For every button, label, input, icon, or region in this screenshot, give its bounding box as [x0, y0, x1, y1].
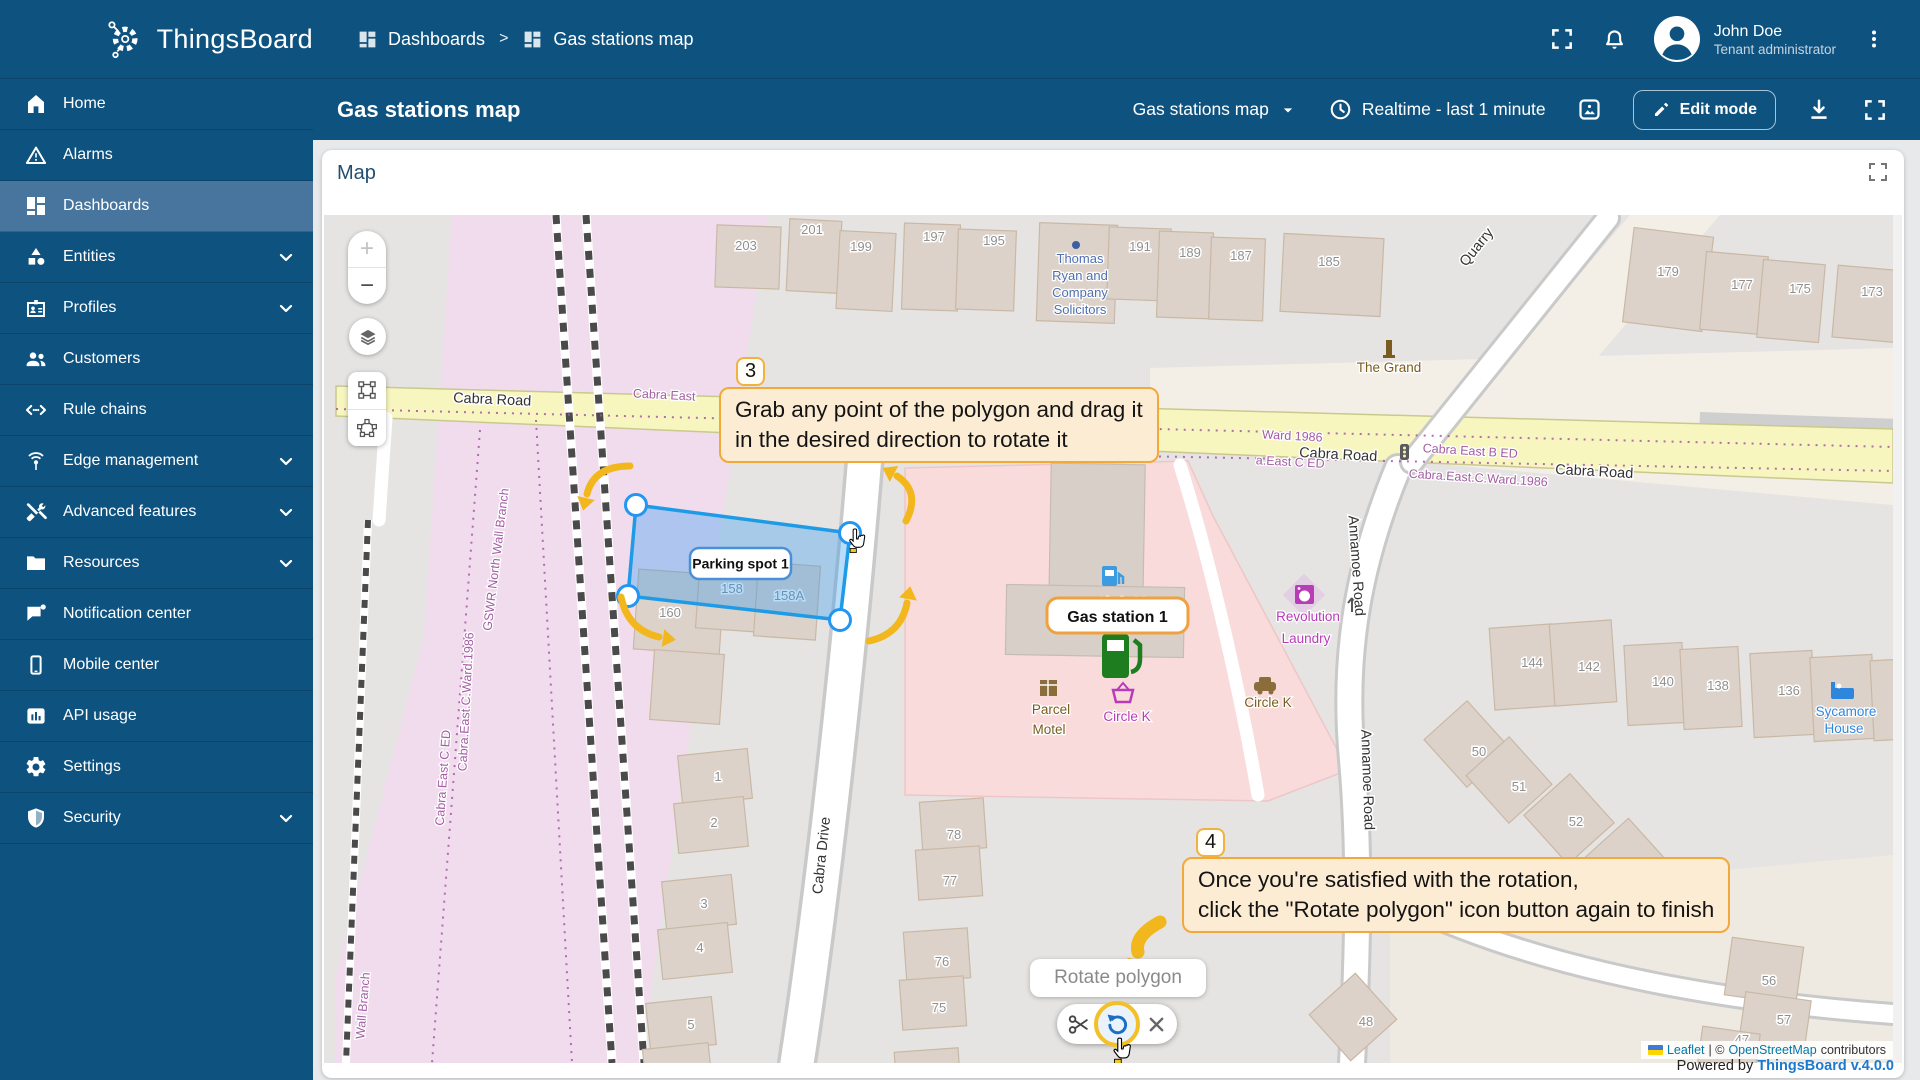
sidebar-item-home[interactable]: Home — [0, 79, 313, 130]
antenna-icon — [24, 449, 48, 473]
folder-icon — [24, 551, 48, 575]
user-name: John Doe — [1714, 22, 1836, 42]
svg-text:179: 179 — [1657, 264, 1679, 279]
user-menu[interactable]: John Doe Tenant administrator — [1654, 16, 1836, 62]
more-menu-icon[interactable] — [1862, 27, 1886, 51]
map-canvas[interactable]: 203 201 199 197 195 191 189 187 185 179 … — [324, 215, 1893, 1063]
dashboard-icon — [522, 29, 543, 50]
widget-title: Map — [337, 160, 376, 185]
sidebar-item-settings[interactable]: Settings — [0, 742, 313, 793]
fullscreen-dashboard-button[interactable] — [1862, 97, 1888, 123]
cursor-hand-icon — [1110, 1037, 1140, 1063]
polygon-vertex-handle[interactable] — [626, 495, 647, 516]
svg-text:177: 177 — [1731, 277, 1753, 292]
notifications-bell-icon[interactable] — [1601, 26, 1628, 53]
layers-icon — [357, 326, 379, 348]
svg-text:189: 189 — [1179, 245, 1201, 260]
home-icon — [24, 92, 48, 116]
svg-text:1: 1 — [714, 769, 721, 784]
chevron-down-icon — [275, 552, 297, 574]
svg-text:3: 3 — [700, 896, 707, 911]
svg-text:2: 2 — [710, 815, 717, 830]
svg-text:The Grand: The Grand — [1357, 360, 1422, 375]
chevron-down-icon — [275, 807, 297, 829]
gear-icon — [24, 755, 48, 779]
screenshot-button[interactable] — [1576, 96, 1603, 123]
svg-text:138: 138 — [1707, 678, 1729, 693]
thingsboard-gear-icon — [104, 15, 145, 63]
svg-text:144: 144 — [1521, 655, 1543, 670]
breadcrumb: Dashboards > Gas stations map — [357, 29, 693, 50]
powered-by: Powered by ThingsBoard v.4.0.0 — [1677, 1058, 1894, 1074]
svg-text:Thomas: Thomas — [1057, 251, 1104, 266]
chevron-down-icon — [275, 297, 297, 319]
zoom-out-button[interactable]: − — [348, 268, 386, 304]
svg-text:Motel: Motel — [1032, 722, 1065, 737]
svg-text:57: 57 — [1777, 1012, 1791, 1027]
gas-station-label: Gas station 1 — [1047, 598, 1188, 633]
sidebar-item-security[interactable]: Security — [0, 793, 313, 844]
polygon-vertex-handle[interactable] — [830, 610, 851, 631]
sidebar-nav: Home Alarms Dashboards Entities Profiles — [0, 79, 313, 1080]
user-role: Tenant administrator — [1714, 42, 1836, 57]
sidebar-item-rule-chains[interactable]: Rule chains — [0, 385, 313, 436]
svg-text:191: 191 — [1129, 239, 1151, 254]
sidebar-item-mobile-center[interactable]: Mobile center — [0, 640, 313, 691]
svg-text:160: 160 — [659, 605, 681, 620]
guide-step-3-badge: 3 — [736, 357, 765, 386]
sidebar-item-api-usage[interactable]: API usage — [0, 691, 313, 742]
widget-fullscreen-icon[interactable] — [1866, 160, 1890, 184]
thingsboard-logo[interactable]: ThingsBoard — [0, 15, 313, 63]
scrollbar-track[interactable] — [1893, 215, 1902, 1063]
thingsboard-version-link[interactable]: ThingsBoard v.4.0.0 — [1757, 1058, 1894, 1074]
shape-edit-controls — [348, 372, 386, 446]
clock-icon — [1328, 97, 1353, 122]
dashboard-state-select[interactable]: Gas stations map — [1133, 99, 1298, 120]
svg-text:Parking spot 1: Parking spot 1 — [692, 556, 789, 572]
svg-text:78: 78 — [947, 827, 961, 842]
svg-text:195: 195 — [983, 233, 1005, 248]
svg-text:Solicitors: Solicitors — [1054, 302, 1107, 317]
avatar — [1654, 16, 1700, 62]
chevron-down-icon — [275, 246, 297, 268]
page-title: Gas stations map — [337, 97, 520, 123]
svg-text:76: 76 — [935, 954, 949, 969]
map-attribution: Leaflet | © OpenStreetMap contributors — [1641, 1041, 1893, 1059]
timewindow-button[interactable]: Realtime - last 1 minute — [1328, 97, 1546, 122]
breadcrumb-separator: > — [499, 30, 508, 48]
svg-text:50: 50 — [1472, 744, 1486, 759]
map-widget-card: Map — [322, 150, 1904, 1078]
sidebar-item-edge-management[interactable]: Edge management — [0, 436, 313, 487]
shield-icon — [24, 806, 48, 830]
guide-step-3-tooltip: Grab any point of the polygon and drag i… — [719, 387, 1159, 463]
dashboard-toolbar: Gas stations map Gas stations map Realti… — [313, 79, 1920, 140]
parking-polygon-label: Parking spot 1 — [690, 548, 791, 579]
badge-icon — [24, 296, 48, 320]
breadcrumb-label: Dashboards — [388, 29, 485, 50]
cut-polygon-button[interactable] — [1066, 1012, 1091, 1037]
edit-polygon-button[interactable] — [348, 410, 386, 447]
sidebar-item-notification-center[interactable]: Notification center — [0, 589, 313, 640]
svg-text:Cabra Road: Cabra Road — [453, 390, 532, 409]
entities-icon — [24, 245, 48, 269]
osm-link[interactable]: OpenStreetMap — [1728, 1043, 1816, 1057]
ukraine-flag-icon — [1648, 1045, 1663, 1055]
svg-text:75: 75 — [932, 1000, 946, 1015]
svg-text:4: 4 — [696, 940, 703, 955]
top-app-bar: ThingsBoard Dashboards > Gas stations ma… — [0, 0, 1920, 79]
app-name: ThingsBoard — [157, 24, 313, 55]
svg-text:Circle K: Circle K — [1244, 695, 1291, 710]
svg-text:201: 201 — [801, 222, 823, 237]
sidebar-item-advanced-features[interactable]: Advanced features — [0, 487, 313, 538]
breadcrumb-current[interactable]: Gas stations map — [522, 29, 693, 50]
dashboard-icon — [24, 194, 48, 218]
sidebar-item-profiles[interactable]: Profiles — [0, 283, 313, 334]
svg-text:173: 173 — [1861, 284, 1883, 299]
people-icon — [24, 347, 48, 371]
svg-text:185: 185 — [1318, 254, 1340, 269]
chevron-down-icon — [1278, 100, 1298, 120]
sidebar-item-customers[interactable]: Customers — [0, 334, 313, 385]
svg-text:48: 48 — [1359, 1014, 1373, 1029]
rotate-icon — [1104, 1011, 1131, 1038]
sidebar-item-alarms[interactable]: Alarms — [0, 130, 313, 181]
svg-text:140: 140 — [1652, 674, 1674, 689]
zoom-in-button[interactable]: + — [348, 231, 386, 268]
svg-text:Ryan and: Ryan and — [1052, 268, 1108, 283]
breadcrumb-label: Gas stations map — [553, 29, 693, 50]
svg-text:Circle K: Circle K — [1103, 709, 1150, 724]
fullscreen-button[interactable] — [1549, 26, 1575, 52]
guide-step-4-badge: 4 — [1196, 828, 1225, 857]
svg-text:203: 203 — [735, 238, 757, 253]
svg-text:51: 51 — [1512, 779, 1526, 794]
svg-text:52: 52 — [1569, 814, 1583, 829]
transform-shape-button[interactable] — [348, 372, 386, 410]
svg-text:Laundry: Laundry — [1282, 631, 1331, 646]
svg-text:142: 142 — [1578, 659, 1600, 674]
tools-icon — [24, 500, 48, 524]
guide-step-4-tooltip: Once you're satisfied with the rotation,… — [1182, 857, 1730, 933]
edit-mode-button[interactable]: Edit mode — [1633, 90, 1776, 130]
chevron-down-icon — [275, 501, 297, 523]
layers-button[interactable] — [349, 318, 386, 355]
rotate-polygon-tooltip: Rotate polygon — [1030, 959, 1206, 997]
chevron-down-icon — [275, 450, 297, 472]
pencil-icon — [1652, 100, 1671, 119]
dashboard-select-value: Gas stations map — [1133, 99, 1269, 120]
download-button[interactable] — [1806, 97, 1832, 123]
svg-text:Company: Company — [1052, 285, 1108, 300]
sidebar-item-dashboards[interactable]: Dashboards — [0, 181, 313, 232]
chart-icon — [24, 704, 48, 728]
svg-text:199: 199 — [850, 239, 872, 254]
transform-icon — [356, 379, 378, 401]
svg-text:House: House — [1824, 721, 1863, 736]
office-dot-icon — [1072, 241, 1080, 249]
svg-text:187: 187 — [1230, 248, 1252, 263]
map-viewport[interactable]: 203 201 199 197 195 191 189 187 185 179 … — [324, 215, 1893, 1063]
rule-chain-icon — [24, 398, 48, 422]
zoom-control: + − — [348, 231, 386, 304]
leaflet-link[interactable]: Leaflet — [1667, 1043, 1705, 1057]
timewindow-value: Realtime - last 1 minute — [1362, 99, 1546, 120]
svg-text:Parcel: Parcel — [1032, 702, 1070, 717]
sidebar-item-resources[interactable]: Resources — [0, 538, 313, 589]
parcel-icon — [1040, 680, 1057, 696]
svg-text:Revolution: Revolution — [1276, 609, 1340, 624]
dashboard-icon — [357, 29, 378, 50]
svg-text:Sycamore: Sycamore — [1816, 704, 1877, 719]
svg-text:77: 77 — [943, 873, 957, 888]
close-button[interactable] — [1145, 1013, 1168, 1036]
svg-text:175: 175 — [1789, 281, 1811, 296]
polygon-edit-icon — [356, 417, 378, 439]
message-icon — [24, 602, 48, 626]
svg-text:56: 56 — [1762, 973, 1776, 988]
monument-icon — [1386, 340, 1392, 355]
svg-text:136: 136 — [1778, 683, 1800, 698]
edit-mode-label: Edit mode — [1680, 101, 1757, 119]
warning-icon — [24, 143, 48, 167]
sidebar-item-entities[interactable]: Entities — [0, 232, 313, 283]
svg-text:197: 197 — [923, 229, 945, 244]
svg-text:5: 5 — [687, 1017, 694, 1032]
phone-icon — [24, 653, 48, 677]
svg-text:Gas station 1: Gas station 1 — [1067, 609, 1168, 626]
breadcrumb-dashboards[interactable]: Dashboards — [357, 29, 485, 50]
